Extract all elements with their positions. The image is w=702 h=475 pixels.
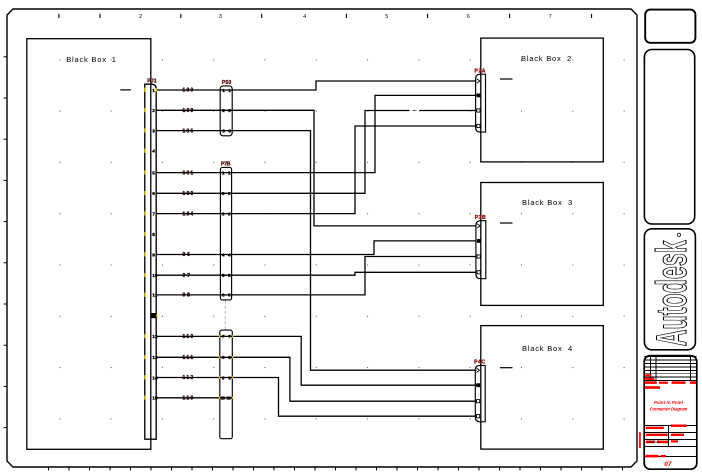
svg-text:3: 3	[228, 211, 231, 217]
svg-text:5: 5	[385, 14, 388, 20]
svg-text:9: 9	[222, 375, 225, 381]
svg-text:3: 3	[152, 128, 155, 134]
svg-text:110: 110	[183, 334, 194, 340]
svg-text:13: 13	[152, 355, 158, 361]
svg-text:3: 3	[228, 128, 231, 134]
svg-text:P4C: P4C	[474, 360, 485, 366]
svg-text:2: 2	[152, 108, 155, 114]
svg-text:Connector Diagram: Connector Diagram	[650, 407, 688, 412]
svg-text:11: 11	[152, 293, 157, 299]
svg-text:7: 7	[228, 334, 231, 340]
svg-text:8: 8	[222, 355, 225, 361]
svg-text:7: 7	[152, 211, 155, 217]
svg-text:1: 1	[222, 170, 225, 176]
svg-text:2: 2	[228, 191, 231, 197]
svg-text:6: 6	[228, 293, 231, 299]
svg-text:2: 2	[222, 108, 225, 114]
svg-text:96: 96	[183, 252, 191, 258]
svg-text:1: 1	[228, 170, 231, 176]
svg-text:3: 3	[222, 211, 225, 217]
svg-text:112: 112	[183, 375, 194, 381]
svg-text:8: 8	[228, 355, 231, 361]
svg-text:Black Box: Black Box	[66, 55, 107, 64]
svg-text:15: 15	[152, 396, 158, 402]
svg-text:103: 103	[183, 108, 194, 114]
svg-text:109: 109	[183, 191, 194, 197]
svg-text:P3B: P3B	[475, 215, 486, 221]
svg-text:5: 5	[228, 273, 231, 279]
svg-text:98: 98	[183, 293, 191, 299]
svg-text:10: 10	[226, 396, 231, 402]
svg-text:4: 4	[303, 14, 306, 20]
svg-text:7: 7	[222, 334, 225, 340]
svg-text:14:8002: 14:8002	[647, 440, 660, 444]
svg-text:8: 8	[152, 232, 155, 238]
svg-text:111: 111	[183, 355, 194, 361]
svg-text:113: 113	[183, 396, 194, 402]
svg-text:12: 12	[152, 334, 158, 340]
svg-text:Point to Point: Point to Point	[654, 400, 684, 405]
svg-text:4: 4	[152, 149, 155, 155]
svg-text:2: 2	[222, 191, 225, 197]
svg-text:9: 9	[228, 375, 231, 381]
svg-text:7: 7	[549, 14, 552, 20]
svg-text:134: 134	[183, 211, 194, 217]
svg-text:6: 6	[222, 293, 225, 299]
svg-text:4: 4	[568, 344, 572, 353]
svg-text:1: 1	[152, 88, 155, 94]
svg-text:10: 10	[152, 273, 158, 279]
svg-text:100: 100	[183, 88, 194, 94]
svg-text:P2A: P2A	[474, 68, 485, 74]
svg-text:Black Box: Black Box	[522, 344, 563, 353]
svg-text:Black Box: Black Box	[522, 198, 563, 207]
svg-text:2: 2	[228, 108, 231, 114]
svg-text:2: 2	[567, 54, 571, 63]
svg-text:14: 14	[152, 375, 158, 381]
svg-text:10: 10	[221, 396, 226, 402]
svg-text:5: 5	[222, 273, 225, 279]
svg-text:5: 5	[152, 170, 155, 176]
svg-text:6: 6	[467, 14, 470, 20]
svg-text:2: 2	[139, 14, 142, 20]
svg-text:1: 1	[222, 88, 225, 94]
svg-text:Black Box: Black Box	[521, 54, 562, 63]
svg-text:1: 1	[228, 88, 231, 94]
svg-text:3: 3	[568, 198, 572, 207]
svg-text:6: 6	[152, 191, 155, 197]
svg-text:07: 07	[664, 461, 672, 468]
svg-text:P7B: P7B	[221, 162, 231, 168]
svg-text:3: 3	[222, 128, 225, 134]
svg-text:4: 4	[228, 252, 231, 258]
svg-text:1: 1	[112, 55, 116, 64]
svg-text:P50: P50	[222, 80, 232, 86]
svg-text:106: 106	[183, 128, 194, 134]
svg-text:9: 9	[152, 252, 155, 258]
svg-text:601: 601	[183, 170, 194, 176]
svg-text:Autodesk: Autodesk	[648, 240, 696, 346]
svg-text:3: 3	[219, 14, 222, 20]
svg-text:97: 97	[183, 273, 191, 279]
svg-text:4: 4	[222, 252, 225, 258]
svg-text:PJ1: PJ1	[147, 79, 157, 85]
